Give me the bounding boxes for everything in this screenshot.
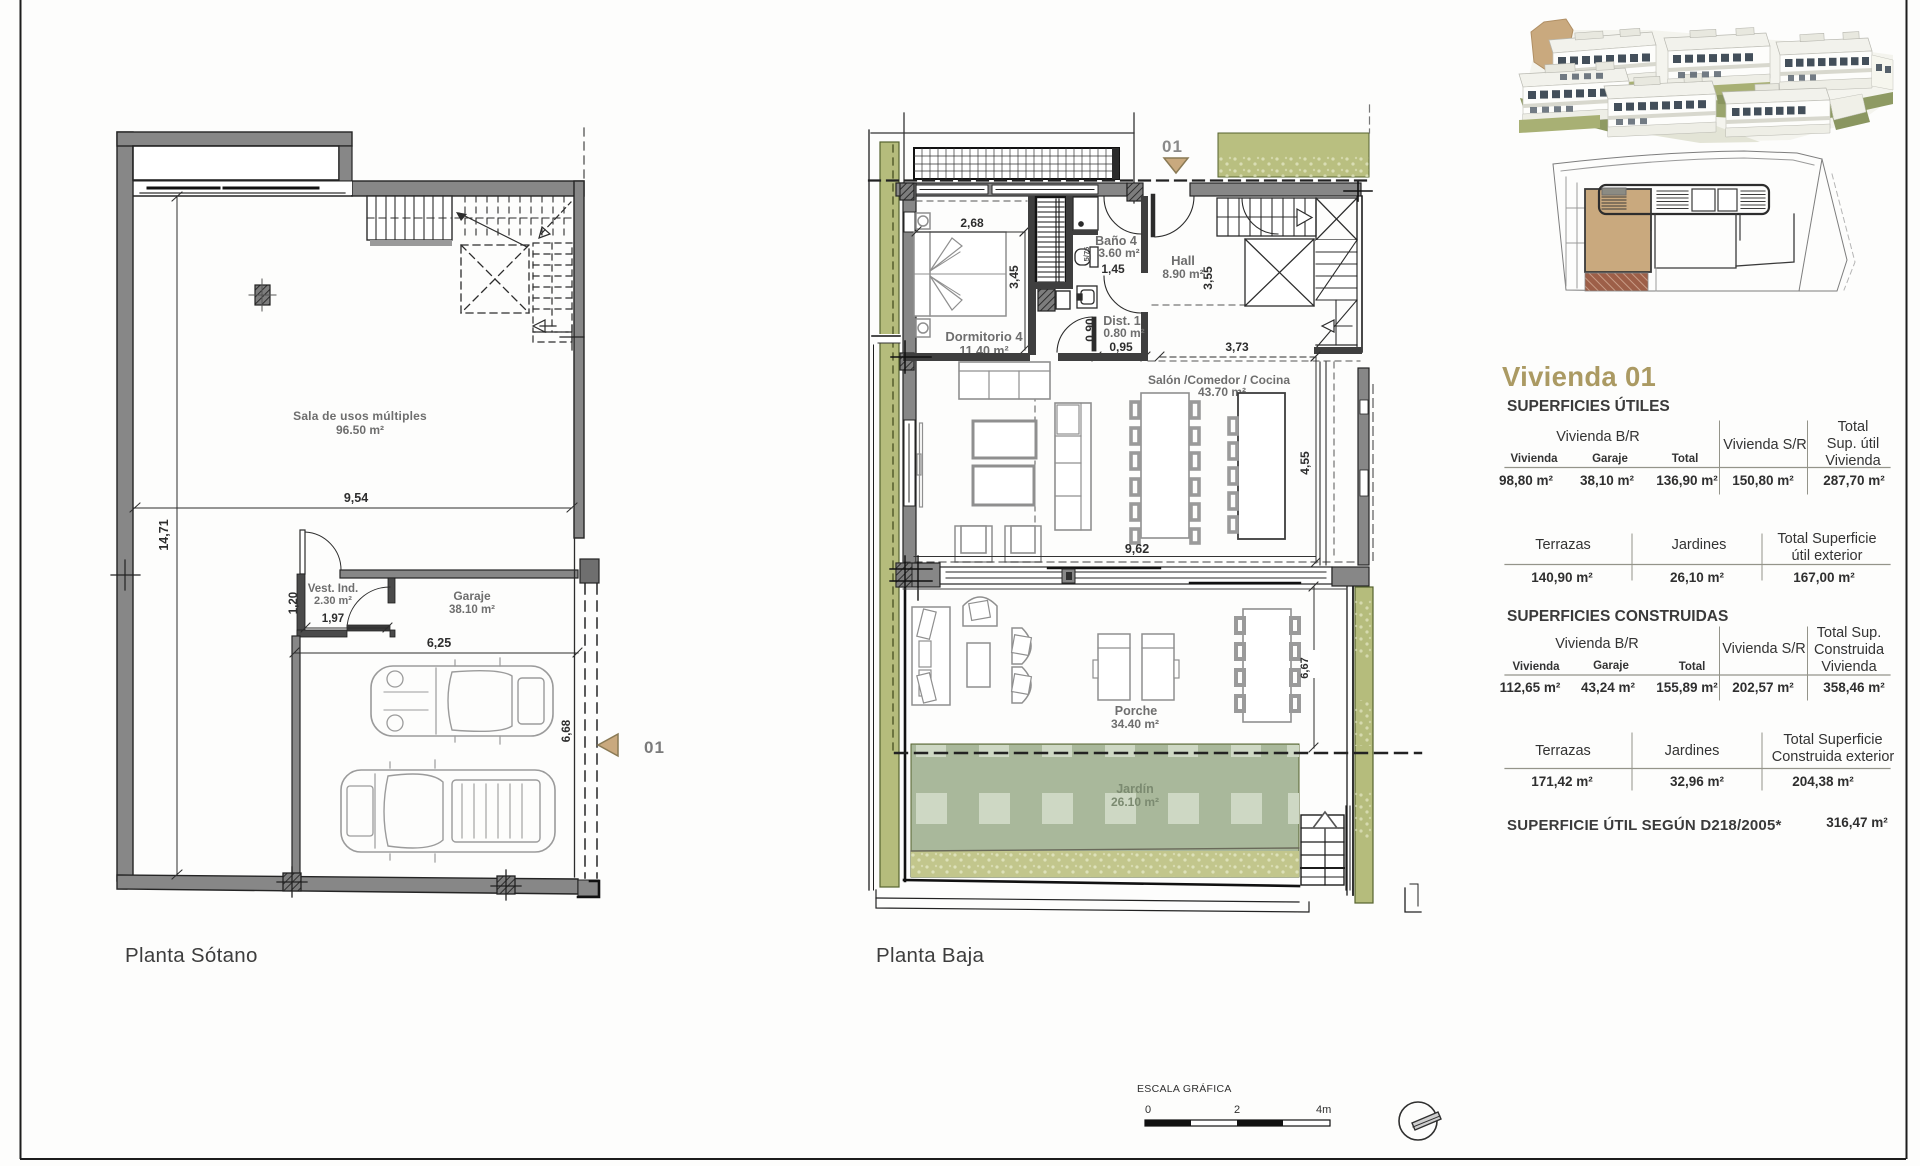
svg-text:Sala de usos múltiples: Sala de usos múltiples xyxy=(293,409,427,423)
svg-text:26.10 m²: 26.10 m² xyxy=(1111,795,1159,809)
svg-text:14,71: 14,71 xyxy=(157,519,171,550)
svg-text:0: 0 xyxy=(1145,1104,1151,1116)
svg-text:316,47 m²: 316,47 m² xyxy=(1826,815,1888,830)
svg-text:Planta Sótano: Planta Sótano xyxy=(125,944,258,967)
svg-text:Jardín: Jardín xyxy=(1116,782,1154,796)
svg-text:4m: 4m xyxy=(1316,1104,1331,1116)
svg-text:útil exterior: útil exterior xyxy=(1792,548,1863,564)
svg-text:140,90 m²: 140,90 m² xyxy=(1531,570,1593,585)
svg-text:26,10 m²: 26,10 m² xyxy=(1670,570,1725,585)
svg-text:5/76: 5/76 xyxy=(1082,247,1091,262)
svg-text:SUPERFICIES ÚTILES: SUPERFICIES ÚTILES xyxy=(1507,397,1670,415)
svg-text:Vivienda: Vivienda xyxy=(1825,453,1881,469)
svg-text:4,55: 4,55 xyxy=(1298,451,1312,475)
svg-text:Garaje: Garaje xyxy=(1593,660,1629,672)
svg-text:3,45: 3,45 xyxy=(1007,265,1021,289)
svg-text:Vivienda: Vivienda xyxy=(1821,659,1877,675)
svg-text:43,24 m²: 43,24 m² xyxy=(1581,680,1636,695)
svg-text:Vivienda B/R: Vivienda B/R xyxy=(1556,429,1640,445)
svg-text:Garaje: Garaje xyxy=(453,589,491,603)
svg-text:Total: Total xyxy=(1838,419,1869,435)
svg-text:202,57 m²: 202,57 m² xyxy=(1732,680,1794,695)
svg-text:155,89 m²: 155,89 m² xyxy=(1656,680,1718,695)
svg-text:34.40 m²: 34.40 m² xyxy=(1111,717,1159,731)
svg-text:Construida: Construida xyxy=(1814,642,1885,658)
svg-text:Garaje: Garaje xyxy=(1592,453,1628,465)
svg-text:150,80 m²: 150,80 m² xyxy=(1732,473,1794,488)
svg-text:167,00 m²: 167,00 m² xyxy=(1793,570,1855,585)
svg-text:287,70 m²: 287,70 m² xyxy=(1823,473,1885,488)
svg-text:6,25: 6,25 xyxy=(427,636,451,650)
svg-text:Vivienda: Vivienda xyxy=(1512,661,1560,673)
svg-text:358,46 m²: 358,46 m² xyxy=(1823,680,1885,695)
svg-text:6,68: 6,68 xyxy=(561,719,573,742)
svg-text:112,65 m²: 112,65 m² xyxy=(1500,680,1561,695)
svg-text:6,67: 6,67 xyxy=(1299,657,1311,678)
svg-text:3,55: 3,55 xyxy=(1201,266,1215,290)
svg-text:Jardines: Jardines xyxy=(1672,537,1727,553)
svg-text:98,80 m²: 98,80 m² xyxy=(1499,473,1554,488)
svg-text:Total Superficie: Total Superficie xyxy=(1777,531,1876,547)
svg-text:SUPERFICIES CONSTRUIDAS: SUPERFICIES CONSTRUIDAS xyxy=(1507,608,1728,625)
svg-text:Vivienda: Vivienda xyxy=(1510,453,1558,465)
svg-text:01: 01 xyxy=(1162,137,1183,156)
svg-text:2: 2 xyxy=(1234,1104,1240,1116)
svg-text:Total Superficie: Total Superficie xyxy=(1783,732,1882,748)
svg-text:2.30 m²: 2.30 m² xyxy=(314,595,352,607)
svg-text:3,73: 3,73 xyxy=(1225,340,1249,354)
svg-text:9,54: 9,54 xyxy=(344,491,368,505)
svg-text:Total: Total xyxy=(1672,453,1699,465)
svg-text:32,96 m²: 32,96 m² xyxy=(1670,774,1725,789)
svg-text:Vivienda 01: Vivienda 01 xyxy=(1502,361,1656,392)
svg-text:171,42 m²: 171,42 m² xyxy=(1531,774,1593,789)
svg-text:Planta Baja: Planta Baja xyxy=(876,944,984,967)
svg-text:Terrazas: Terrazas xyxy=(1535,743,1591,759)
svg-text:Total Sup.: Total Sup. xyxy=(1817,625,1882,641)
svg-text:Vivienda B/R: Vivienda B/R xyxy=(1555,636,1639,652)
svg-text:0,90: 0,90 xyxy=(1083,318,1097,342)
svg-text:Vest. Ind.: Vest. Ind. xyxy=(308,583,359,595)
svg-text:0.80 m²: 0.80 m² xyxy=(1103,326,1144,340)
svg-text:Total: Total xyxy=(1679,661,1706,673)
svg-text:1,20: 1,20 xyxy=(288,592,300,614)
svg-text:1,97: 1,97 xyxy=(322,613,344,625)
svg-text:8.90 m²: 8.90 m² xyxy=(1162,267,1203,281)
svg-text:01: 01 xyxy=(644,738,665,757)
svg-text:38,10 m²: 38,10 m² xyxy=(1580,473,1635,488)
svg-text:38.10 m²: 38.10 m² xyxy=(449,604,495,616)
svg-text:Hall: Hall xyxy=(1171,253,1195,268)
svg-text:1,45: 1,45 xyxy=(1101,262,1125,276)
svg-text:204,38 m²: 204,38 m² xyxy=(1792,774,1854,789)
svg-text:9,62: 9,62 xyxy=(1125,542,1149,556)
svg-text:96.50 m²: 96.50 m² xyxy=(336,423,384,437)
svg-text:Vivienda S/R: Vivienda S/R xyxy=(1722,641,1806,657)
svg-text:2,68: 2,68 xyxy=(960,216,984,230)
svg-text:SUPERFICIE ÚTIL SEGÚN D218/200: SUPERFICIE ÚTIL SEGÚN D218/2005* xyxy=(1507,816,1782,834)
svg-text:Vivienda S/R: Vivienda S/R xyxy=(1723,437,1807,453)
svg-text:ESCALA GRÁFICA: ESCALA GRÁFICA xyxy=(1137,1082,1232,1095)
svg-text:136,90 m²: 136,90 m² xyxy=(1656,473,1718,488)
svg-text:Porche: Porche xyxy=(1115,704,1157,718)
svg-text:0,95: 0,95 xyxy=(1109,340,1133,354)
svg-text:Dormitorio 4: Dormitorio 4 xyxy=(945,329,1023,344)
svg-text:Jardines: Jardines xyxy=(1665,743,1720,759)
svg-text:Terrazas: Terrazas xyxy=(1535,537,1591,553)
svg-text:Sup. útil: Sup. útil xyxy=(1827,436,1879,452)
svg-text:Construida exterior: Construida exterior xyxy=(1772,749,1895,765)
svg-text:3.60 m²: 3.60 m² xyxy=(1098,246,1139,260)
